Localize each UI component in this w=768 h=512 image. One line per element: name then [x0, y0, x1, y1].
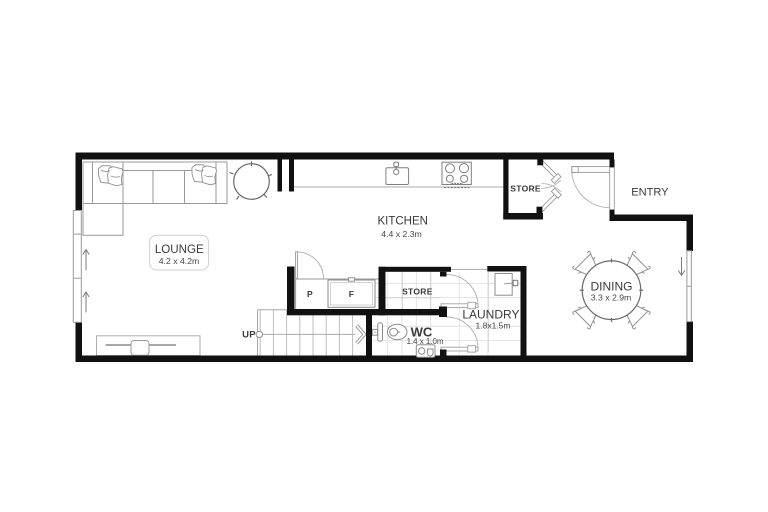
- svg-text:ENTRY: ENTRY: [631, 187, 669, 199]
- svg-text:LOUNGE: LOUNGE: [155, 243, 204, 256]
- svg-text:1.8x1.5m: 1.8x1.5m: [476, 320, 511, 330]
- svg-text:4.4 x 2.3m: 4.4 x 2.3m: [381, 229, 422, 239]
- svg-text:F: F: [349, 289, 355, 299]
- svg-text:STORE: STORE: [402, 286, 433, 296]
- svg-text:STORE: STORE: [510, 184, 541, 194]
- svg-text:UP: UP: [242, 329, 256, 340]
- svg-text:3.3 x 2.9m: 3.3 x 2.9m: [591, 293, 632, 303]
- svg-text:KITCHEN: KITCHEN: [377, 215, 427, 227]
- svg-text:DINING: DINING: [591, 280, 633, 294]
- svg-text:1.4 x 1.0m: 1.4 x 1.0m: [407, 337, 444, 346]
- svg-text:P: P: [307, 289, 313, 299]
- svg-text:4.2 x 4.2m: 4.2 x 4.2m: [159, 256, 200, 266]
